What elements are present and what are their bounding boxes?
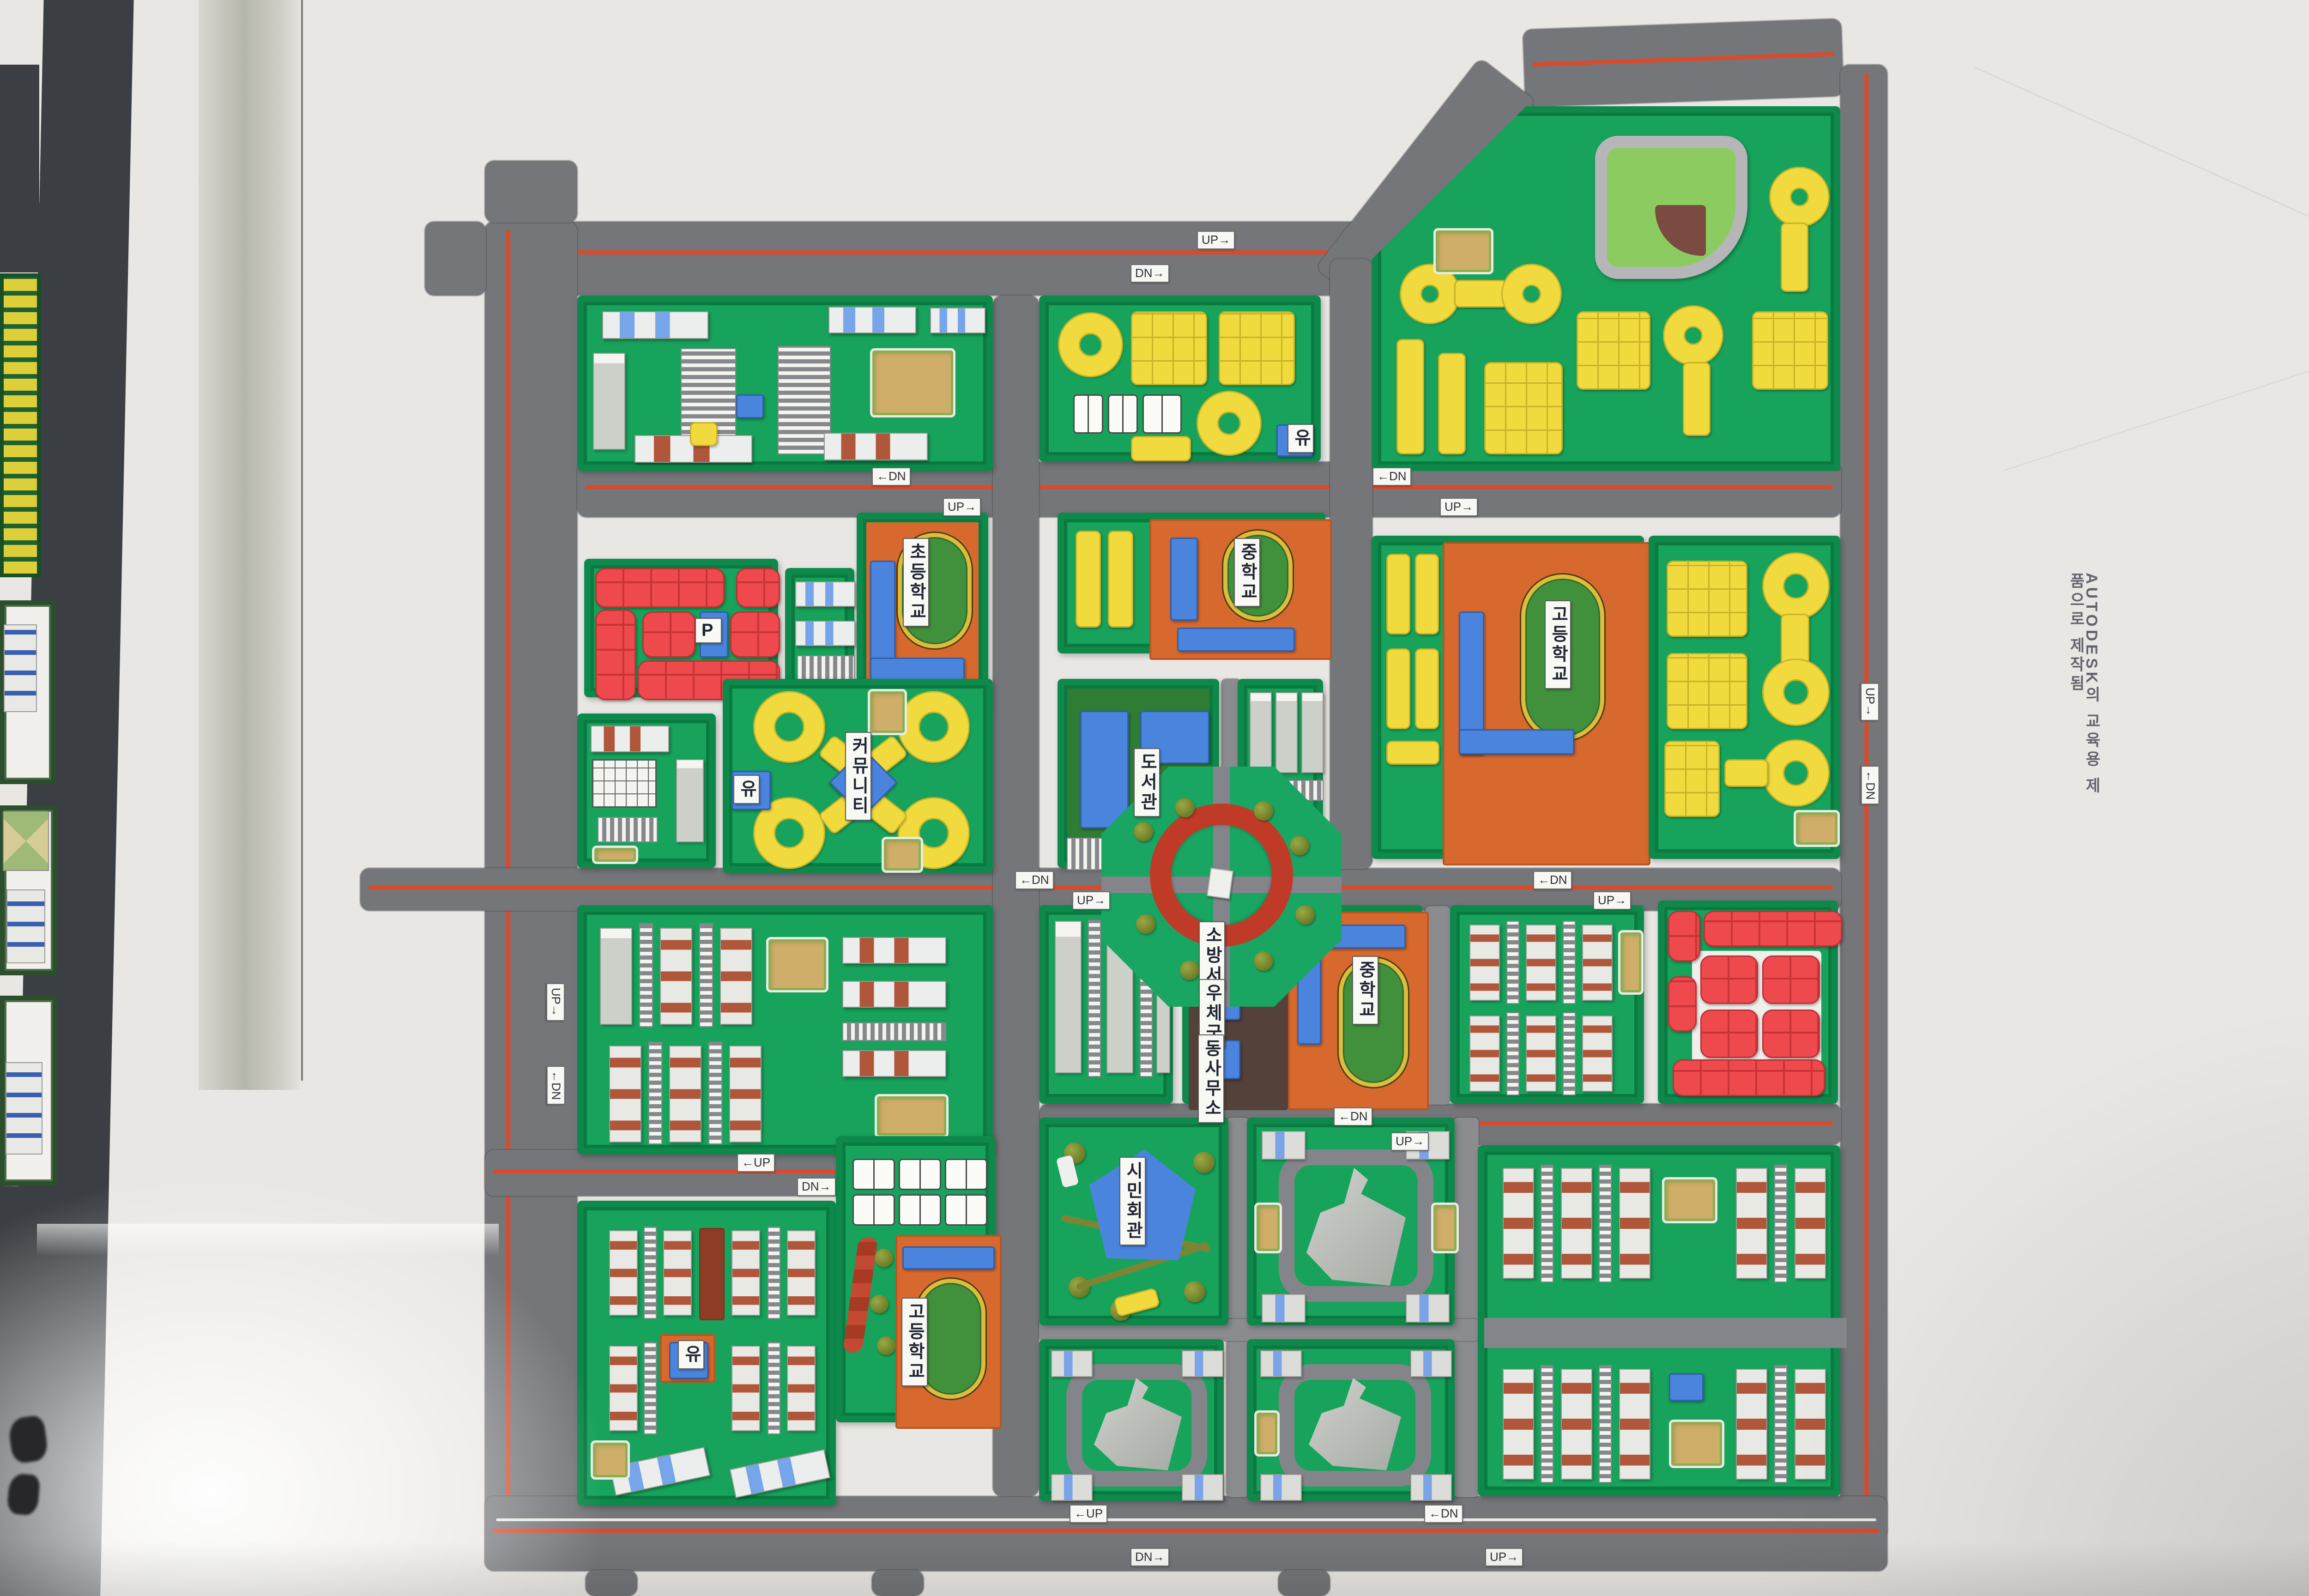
- road-direction-label: ←DN: [1015, 871, 1054, 889]
- small-house: [1410, 1474, 1452, 1501]
- red-path: [842, 1237, 878, 1353]
- commercial-building: [595, 568, 725, 608]
- rowhouse-bar: [1386, 741, 1439, 765]
- road-center-line: [493, 1529, 1879, 1533]
- tree: [1136, 914, 1155, 934]
- school-high-e: [1372, 536, 1644, 859]
- sports-court: [899, 1194, 941, 1226]
- road-direction-label: ←DN: [1372, 467, 1411, 486]
- hedge-strip: [699, 1228, 725, 1320]
- playground: [1254, 1203, 1282, 1253]
- rowhouse-loop: [1503, 265, 1560, 323]
- parking-lot: [842, 1022, 946, 1041]
- apartment-slab-blue: [930, 308, 985, 333]
- facility-label: 유: [678, 1340, 704, 1369]
- road-center-line: [586, 485, 1833, 489]
- parking-lot: [768, 1227, 780, 1319]
- rowhouse-bar: [1386, 648, 1410, 729]
- road-direction-label: UP→: [1072, 891, 1110, 910]
- gmass-b: [1039, 1339, 1224, 1501]
- sports-court: [1108, 394, 1138, 434]
- road-direction-label: ←DN: [1334, 1107, 1372, 1126]
- rowhouse-bar: [1438, 353, 1466, 454]
- road-center-line: [1532, 52, 1834, 67]
- residential-se: [1478, 1145, 1840, 1496]
- parking-lot: [1774, 1165, 1787, 1282]
- apartment-slab-red: [609, 1046, 641, 1143]
- apartment-slab-red: [824, 433, 928, 460]
- road-direction-label: DN→: [1130, 1548, 1169, 1566]
- rowhouse-bar: [1683, 362, 1711, 436]
- commercial-building: [1700, 955, 1758, 1004]
- apartment-slab-red: [842, 981, 946, 1008]
- small-house: [1410, 1350, 1452, 1377]
- road: [425, 222, 486, 296]
- rowhouse-bar: [1454, 280, 1507, 308]
- small-house: [1051, 1350, 1093, 1377]
- autodesk-educational-note: AUTODESK의 교육용 제품으로 제작됨: [2068, 573, 2099, 813]
- road-direction-label: ←DN: [1424, 1505, 1463, 1523]
- road-edge-line: [496, 1518, 1876, 1521]
- apartment-slab-blue: [828, 307, 916, 333]
- apartment-slab-red: [731, 1230, 760, 1316]
- rowhouse-bar: [1108, 531, 1133, 628]
- apartment-slab-red: [729, 1046, 762, 1143]
- tree: [877, 1336, 895, 1355]
- playground: [1254, 1410, 1280, 1457]
- road-direction-label: UP→: [1485, 1548, 1523, 1566]
- rowhouse-loop: [755, 692, 824, 762]
- rowhouse-grid: [1484, 362, 1563, 454]
- small-house: [1182, 1350, 1223, 1377]
- facility-label: 시민회관: [1119, 1157, 1146, 1245]
- rowhouse-bar: [1415, 554, 1439, 635]
- road-direction-label: UP→: [1197, 231, 1235, 249]
- apartment-slab-red: [669, 1046, 701, 1143]
- rowhouse-loop: [1059, 314, 1122, 376]
- apartment-slab-red: [663, 1230, 692, 1316]
- tree: [1184, 1281, 1205, 1302]
- commercial-building: [642, 611, 695, 658]
- parking-lot: [644, 1227, 657, 1319]
- road-direction-label: ←DN: [872, 467, 911, 486]
- facility-label: 초등학교: [903, 538, 929, 627]
- facility-label: 도서관: [1134, 748, 1160, 817]
- rowhouse-bar: [1781, 614, 1809, 667]
- commercial-building: [1762, 1010, 1820, 1058]
- civic-building: [870, 658, 965, 682]
- road: [1454, 1118, 1479, 1497]
- apartment-slab-red: [1795, 1369, 1826, 1480]
- commercial-building: [595, 610, 636, 700]
- civic-building: [1177, 628, 1295, 652]
- apartment-slab-red: [1469, 925, 1500, 1001]
- small-house: [1406, 1294, 1450, 1323]
- rowhouse-bar: [1415, 648, 1439, 729]
- apartment-slab-red: [1526, 1016, 1556, 1092]
- commercial-e: [1658, 901, 1838, 1104]
- photo-of-urban-plan-model: 초등학교중학교고등학교중학교고등학교도서관커뮤니티유유유소방서우체국동사무소시민…: [0, 0, 2309, 1596]
- playground: [868, 689, 907, 735]
- tree: [1193, 1152, 1215, 1173]
- school-middle-n: [1058, 513, 1325, 653]
- apartment-slab-red: [787, 1230, 816, 1316]
- road: [1523, 18, 1844, 107]
- road-direction-label: ←DN: [1533, 871, 1572, 889]
- road: [1227, 1118, 1249, 1497]
- apartment-slab-red: [1469, 1016, 1500, 1092]
- apartment-slab-red: [1503, 1369, 1534, 1480]
- road-direction-label: ←DN: [1861, 766, 1880, 804]
- road: [485, 1496, 1887, 1571]
- parking-lot: [1506, 1012, 1519, 1095]
- playground: [592, 846, 638, 864]
- playground: [882, 837, 923, 873]
- tree: [1254, 951, 1273, 971]
- residential-e3: [1450, 905, 1644, 1104]
- road-direction-label: UP→: [1593, 891, 1631, 910]
- sports-court: [1142, 394, 1182, 434]
- apartment-slab-red: [1582, 1016, 1613, 1092]
- road: [1425, 906, 1450, 1105]
- rowhouse-bar: [1781, 223, 1808, 292]
- civic-building: [1080, 711, 1129, 828]
- sports-court: [899, 1159, 941, 1190]
- apartment-slab: [1301, 692, 1324, 773]
- facility-label: 유: [733, 775, 760, 804]
- road: [586, 1570, 637, 1596]
- parking-lot: [778, 346, 831, 454]
- road-direction-label: UP→: [1391, 1132, 1429, 1151]
- rowhouse-bar: [690, 422, 718, 446]
- commercial-building: [736, 568, 780, 608]
- monument: [1207, 868, 1233, 899]
- facility-label: P: [695, 618, 722, 643]
- parking-lot: [644, 1342, 657, 1434]
- road-direction-label: UP→: [1861, 683, 1879, 721]
- parking-lot: [768, 1342, 780, 1434]
- parking-lot: [1088, 920, 1101, 1077]
- parking-lot: [598, 817, 658, 842]
- yellow-terrace-n: [1039, 296, 1321, 462]
- internal-road: [1484, 1318, 1847, 1348]
- playground: [870, 348, 955, 417]
- rowhouse-loop: [1764, 741, 1828, 805]
- residential-strip: [785, 568, 854, 697]
- sports-court: [945, 1194, 987, 1226]
- tree: [1180, 961, 1199, 980]
- rowhouse-bar: [1131, 436, 1191, 461]
- playground: [1794, 810, 1840, 847]
- parking-lot: [1774, 1365, 1787, 1483]
- rowhouse-loop: [899, 692, 968, 762]
- tree: [1134, 822, 1153, 841]
- rowhouse-loop: [1664, 307, 1722, 364]
- parking-lot: [1541, 1165, 1553, 1282]
- apartment-slab-blue: [730, 1449, 831, 1498]
- facility-label: 동사무소: [1198, 1034, 1224, 1123]
- rowhouse-loop: [1771, 168, 1828, 226]
- apartment-slab: [593, 353, 625, 450]
- apartment-slab-red: [787, 1346, 816, 1431]
- civic-building: [736, 394, 764, 418]
- residential-w3: [577, 905, 993, 1155]
- road: [1278, 1570, 1330, 1596]
- road-direction-label: ←UP: [737, 1154, 775, 1172]
- civic-building: [902, 1246, 995, 1270]
- apartment-slab-red: [1795, 1168, 1826, 1279]
- playground: [1669, 1420, 1724, 1468]
- rowhouse-bar: [1396, 339, 1424, 454]
- commercial-building: [730, 611, 780, 658]
- small-house: [1262, 1131, 1306, 1160]
- rowhouse-grid: [1131, 311, 1207, 385]
- civic-building: [1669, 1373, 1704, 1401]
- playground: [591, 1440, 630, 1480]
- residential-sw4: [577, 1201, 836, 1505]
- sports-court: [852, 1194, 895, 1226]
- rowhouse-grid: [1667, 653, 1747, 729]
- apartment-slab-red: [1736, 1168, 1767, 1279]
- small-house: [1260, 1350, 1302, 1377]
- playground: [766, 937, 828, 992]
- rowhouse-grid: [1752, 311, 1828, 390]
- rowhouse-bar: [1386, 554, 1410, 635]
- rowhouse-grid: [1577, 311, 1650, 390]
- small-house: [1260, 1474, 1302, 1501]
- rowhouse-grid: [1667, 561, 1747, 637]
- commercial-building: [1668, 911, 1700, 961]
- apartment-slab-blue: [795, 581, 855, 607]
- sports-court: [1073, 394, 1103, 434]
- commercial-building: [1668, 976, 1697, 1032]
- apartment-slab-blue: [795, 621, 855, 646]
- parking-lot: [699, 923, 713, 1027]
- residential-courts-w: [577, 713, 716, 868]
- road-direction-label: DN→: [1130, 264, 1169, 283]
- road-direction-label: ←UP: [1070, 1505, 1107, 1523]
- facility-label: 중학교: [1352, 956, 1378, 1025]
- apartment-slab-red: [660, 928, 692, 1025]
- parking-lot: [1506, 921, 1519, 1004]
- rowhouse-grid: [1219, 311, 1295, 385]
- facility-label: 커뮤니티: [845, 732, 871, 821]
- road: [1330, 259, 1372, 869]
- small-house: [1182, 1474, 1223, 1501]
- rowhouse-bar: [1076, 531, 1101, 628]
- tree: [875, 1249, 893, 1267]
- road-center-line: [369, 886, 1833, 890]
- facility-label: 중학교: [1234, 538, 1260, 607]
- apartment-slab-red: [1582, 925, 1613, 1001]
- tree: [870, 1295, 889, 1313]
- playground: [875, 1094, 949, 1138]
- apartment-slab: [1250, 692, 1272, 773]
- parking-lot: [1599, 1365, 1612, 1483]
- road-direction-label: UP→: [546, 983, 565, 1021]
- small-house: [1051, 1474, 1093, 1501]
- commercial-building: [1704, 911, 1842, 947]
- apartment-slab-red: [609, 1346, 638, 1431]
- sports-court: [945, 1159, 987, 1190]
- apartment-slab-red: [1561, 1168, 1592, 1279]
- playground: [1431, 1203, 1459, 1253]
- commercial-building: [1762, 955, 1820, 1004]
- tree: [1295, 905, 1315, 925]
- parking-lot: [1563, 1012, 1576, 1095]
- sports-court: [852, 1159, 895, 1190]
- facility-label: 고등학교: [901, 1298, 928, 1386]
- apartment-slab: [676, 759, 704, 842]
- small-house: [1262, 1294, 1306, 1323]
- road-center-line: [493, 250, 1359, 254]
- playground: [1662, 1177, 1717, 1223]
- civic-building: [1459, 729, 1574, 755]
- commercial-w: [584, 559, 778, 697]
- tree: [1175, 798, 1195, 817]
- parking-lot: [639, 923, 653, 1027]
- rowhouse-bar: [1724, 759, 1768, 787]
- residential-nw: [577, 296, 993, 471]
- playground: [1433, 228, 1493, 274]
- glass-roof-building: [592, 759, 657, 808]
- parking-lot: [1563, 921, 1576, 1004]
- road: [872, 1570, 924, 1596]
- road-direction-label: UP→: [943, 498, 981, 516]
- rowhouse-loop: [1198, 392, 1260, 454]
- parking-lot: [708, 1042, 722, 1144]
- apartment-slab-red: [1619, 1369, 1650, 1480]
- apartment-slab-red: [1619, 1168, 1650, 1279]
- rowhouse-bar: [1113, 1287, 1161, 1317]
- apartment-slab: [1055, 921, 1082, 1073]
- apartment-slab-red: [609, 1230, 638, 1316]
- parking-lot: [648, 1042, 662, 1144]
- road-direction-label: DN→: [797, 1178, 836, 1196]
- urban-planning-model-board: 초등학교중학교고등학교중학교고등학교도서관커뮤니티유유유소방서우체국동사무소시민…: [0, 0, 2309, 1596]
- rowhouse-loop: [1764, 660, 1828, 725]
- apartment-slab-red: [1736, 1369, 1767, 1480]
- civic-building: [1170, 538, 1198, 621]
- commercial-building: [1673, 1059, 1825, 1096]
- parking-lot: [1599, 1165, 1612, 1282]
- yellow-barbell-e: [1649, 536, 1840, 859]
- rowhouse-grid: [1664, 741, 1720, 817]
- apartment-slab: [600, 928, 632, 1025]
- apartment-slab-red: [720, 928, 752, 1025]
- apartment-slab-red: [731, 1346, 760, 1431]
- apartment-slab: [1275, 692, 1298, 773]
- gmass-c: [1247, 1339, 1455, 1501]
- apartment-slab-red: [1526, 925, 1556, 1001]
- road-direction-label: UP→: [1440, 498, 1478, 516]
- apartment-slab-red: [842, 937, 946, 964]
- road-direction-label: ←DN: [547, 1066, 565, 1105]
- tree: [1254, 801, 1273, 821]
- tree: [1290, 836, 1309, 855]
- parking-lot: [1541, 1365, 1553, 1483]
- apartment-slab-blue: [602, 311, 708, 339]
- apartment-slab-red: [1561, 1369, 1592, 1480]
- apartment-slab-red: [591, 725, 669, 752]
- facility-label: 고등학교: [1545, 600, 1571, 689]
- road: [485, 161, 577, 223]
- apartment-slab-red: [1503, 1168, 1534, 1279]
- facility-label: 유: [1287, 424, 1314, 453]
- playground: [1618, 930, 1644, 995]
- apartment-slab-red: [842, 1050, 946, 1077]
- commercial-building: [1700, 1010, 1758, 1058]
- rowhouse-loop: [1764, 554, 1828, 618]
